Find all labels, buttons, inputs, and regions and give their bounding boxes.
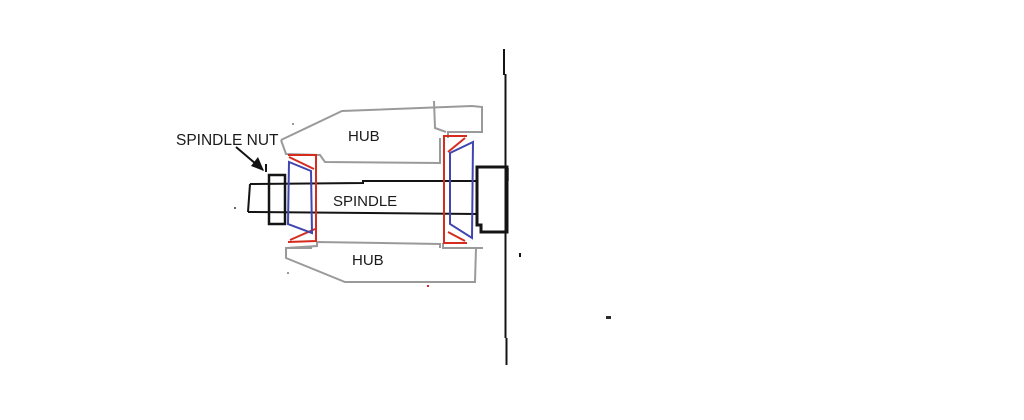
speck-far-right xyxy=(606,316,611,319)
label-spindle-nut: SPINDLE NUT xyxy=(176,132,279,149)
arrow-head xyxy=(251,157,264,171)
speck-red xyxy=(427,285,429,287)
spindle-hub-diagram: SPINDLE NUTHUBSPINDLEHUB xyxy=(0,0,1024,420)
spindle-end-line xyxy=(248,184,250,212)
spindle-bottom-line xyxy=(248,212,477,214)
speck-right-of-line xyxy=(519,253,521,257)
outer-block-outline xyxy=(477,167,507,232)
label-spindle: SPINDLE xyxy=(333,193,397,210)
right-cup-bottom-diagonal xyxy=(448,232,465,241)
label-hub-bottom: HUB xyxy=(352,252,384,269)
spindle-nut-outline xyxy=(269,175,285,224)
speck-left-of-spindle xyxy=(234,207,236,209)
label-hub-top: HUB xyxy=(348,128,380,145)
hub-top-outline xyxy=(281,106,482,140)
hub-bottom-seat-line xyxy=(286,242,440,248)
left-bearing-cone xyxy=(288,162,312,233)
speck-above-hub xyxy=(292,123,294,125)
speck-below-hub xyxy=(287,272,289,274)
right-bearing-cone xyxy=(450,142,473,238)
hub-top-web-line xyxy=(434,101,446,132)
drawing-canvas: SPINDLE NUTHUBSPINDLEHUB xyxy=(0,0,1024,420)
